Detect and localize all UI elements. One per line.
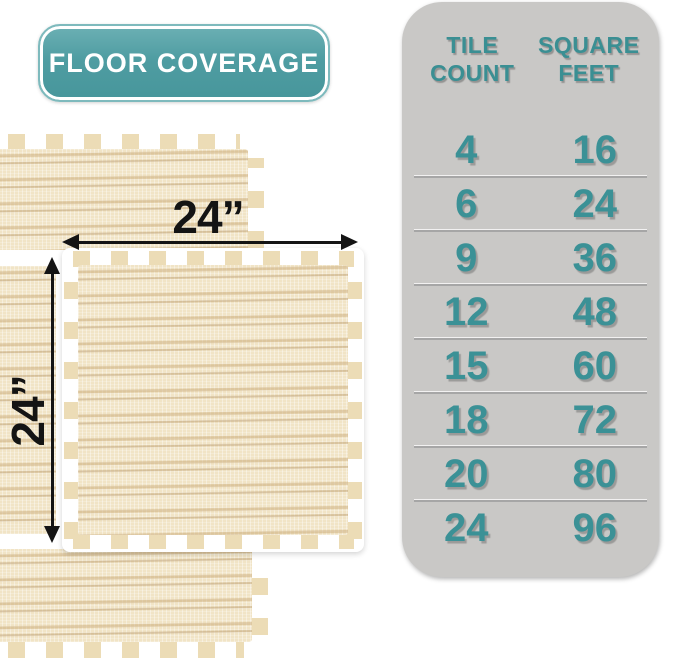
tile-count-value: 24 — [402, 506, 531, 551]
height-dimension-label: 24” — [5, 361, 51, 461]
table-row: 4 16 — [402, 124, 659, 176]
table-row: 20 80 — [402, 448, 659, 500]
tile-main-body — [78, 265, 348, 535]
tile-count-value: 4 — [402, 128, 531, 173]
tile-count-value: 15 — [402, 344, 531, 389]
square-feet-value: 48 — [531, 290, 660, 335]
floor-coverage-badge-label: FLOOR COVERAGE — [49, 48, 320, 79]
square-feet-value: 24 — [531, 182, 660, 227]
tile-count-value: 18 — [402, 398, 531, 443]
square-feet-value: 16 — [531, 128, 660, 173]
table-row: 18 72 — [402, 394, 659, 446]
tile-count-value: 12 — [402, 290, 531, 335]
table-row: 9 36 — [402, 232, 659, 284]
coverage-table-panel: TILE COUNT SQUARE FEET 4 16 6 24 9 36 12… — [402, 2, 659, 577]
table-header: TILE COUNT SQUARE FEET — [402, 2, 659, 124]
tile-bottom-body — [0, 549, 252, 642]
arrow-head-left-icon — [62, 234, 79, 250]
table-body: 4 16 6 24 9 36 12 48 15 60 — [402, 124, 659, 554]
square-feet-value: 80 — [531, 452, 660, 497]
square-feet-value: 36 — [531, 236, 660, 281]
arrow-head-right-icon — [341, 234, 358, 250]
column-header-tile-count: TILE COUNT — [414, 32, 531, 124]
square-feet-value: 72 — [531, 398, 660, 443]
infographic-canvas: 24” 24” FLOOR COVERAGE TILE COUNT SQUARE… — [0, 0, 679, 661]
floor-coverage-badge: FLOOR COVERAGE — [38, 24, 330, 102]
tile-bottom-teeth-right — [252, 557, 268, 635]
tile-main-teeth-bottom — [73, 533, 354, 549]
width-dimension-label: 24” — [158, 194, 258, 240]
arrow-head-down-icon — [44, 526, 60, 543]
tile-bottom-teeth-bottom — [8, 641, 244, 658]
tile-main-teeth-right — [346, 261, 362, 539]
tile-count-value: 9 — [402, 236, 531, 281]
table-row: 12 48 — [402, 286, 659, 338]
table-row: 15 60 — [402, 340, 659, 392]
table-row: 6 24 — [402, 178, 659, 230]
tile-count-value: 20 — [402, 452, 531, 497]
arrow-head-up-icon — [44, 257, 60, 274]
tile-count-value: 6 — [402, 182, 531, 227]
table-row: 24 96 — [402, 502, 659, 554]
square-feet-value: 96 — [531, 506, 660, 551]
column-header-square-feet: SQUARE FEET — [531, 32, 648, 124]
square-feet-value: 60 — [531, 344, 660, 389]
